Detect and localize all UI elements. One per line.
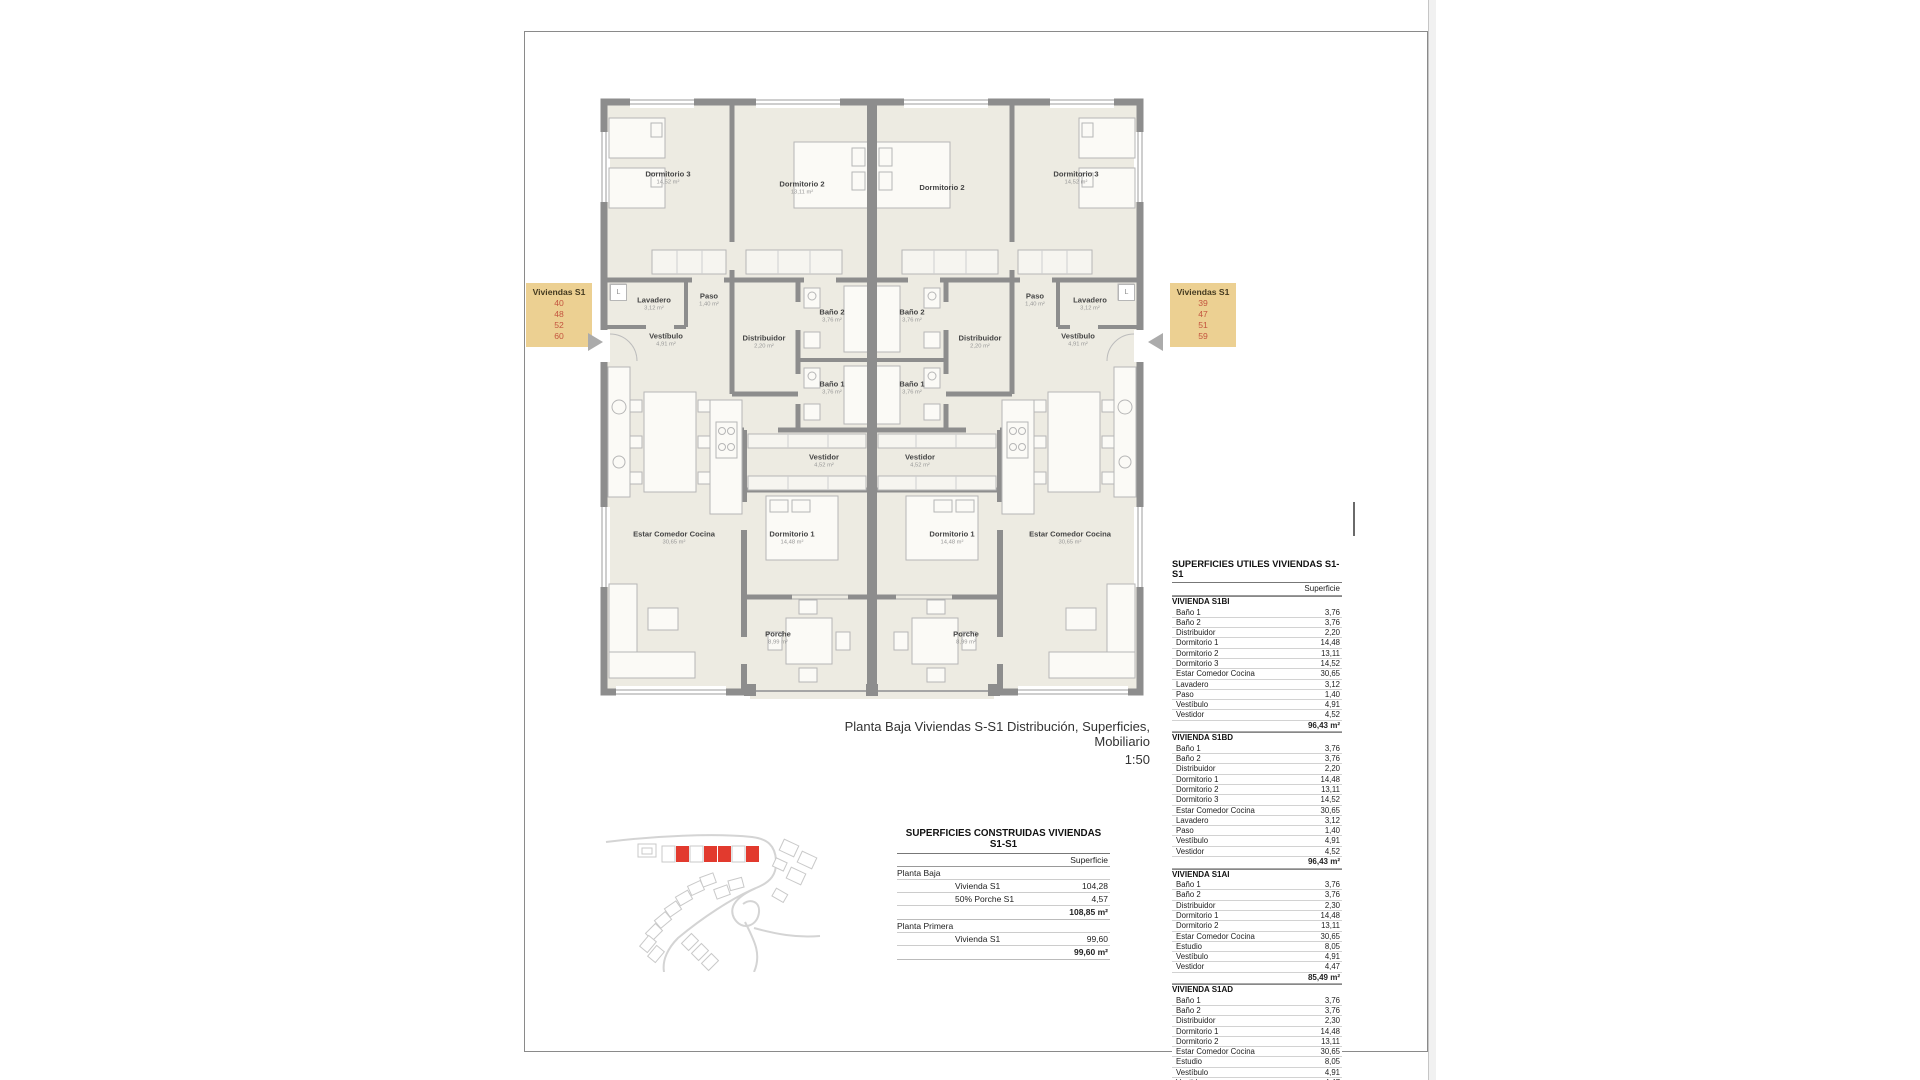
table-row: Distribuidor2,30 [1172, 1016, 1342, 1026]
row-value: 2,20 [1325, 628, 1342, 637]
row-label: Vestidor [1172, 710, 1204, 719]
row-label: Estar Comedor Cocina [1172, 806, 1255, 815]
room-label-dormitorio2-right: Dormitorio 213,11 m² [919, 183, 964, 193]
row-label: Baño 1 [1172, 996, 1201, 1005]
table-row: Dormitorio 314,52 [1172, 795, 1342, 805]
unit-tag-title: Viviendas S1 [526, 287, 592, 297]
table-column-header: Superficie [897, 854, 1110, 867]
room-label-vestidor-left: Vestidor4,52 m² [809, 452, 839, 469]
row-label: Dormitorio 3 [1172, 659, 1218, 668]
row-label: Paso [1172, 826, 1194, 835]
row-value: 1,40 [1325, 690, 1342, 699]
row-value: 3,76 [1325, 996, 1342, 1005]
table-row: Baño 23,76 [1172, 1006, 1342, 1016]
row-value: 3,12 [1325, 816, 1342, 825]
row-value: 3,76 [1325, 880, 1342, 889]
group-header: VIVIENDA S1AI [1172, 869, 1342, 881]
table-row: Estudio8,05 [1172, 1057, 1342, 1067]
table-row: Dormitorio 114,48 [1172, 911, 1342, 921]
entrance-arrow-right [1148, 333, 1163, 351]
section-subtotal: 108,85 m² [897, 906, 1110, 920]
row-value: 4,91 [1325, 952, 1342, 961]
usable-surfaces-table: SUPERFICIES UTILES VIVIENDAS S1-S1 Super… [1172, 557, 1342, 1080]
row-value: 3,76 [1325, 618, 1342, 627]
table-row: Vivienda S199,60 [897, 933, 1110, 946]
table-title: SUPERFICIES CONSTRUIDAS VIVIENDAS S1-S1 [897, 826, 1110, 854]
row-value: 4,91 [1325, 700, 1342, 709]
table-row: Dormitorio 114,48 [1172, 1027, 1342, 1037]
row-value: 4,52 [1325, 847, 1342, 856]
table-row: Dormitorio 114,48 [1172, 638, 1342, 648]
room-label-dormitorio1-left: Dormitorio 114,48 m² [769, 529, 814, 546]
table-row: Paso1,40 [1172, 690, 1342, 700]
row-label: Vestíbulo [1172, 1068, 1208, 1077]
row-label: Dormitorio 1 [1172, 1027, 1218, 1036]
row-value: 8,05 [1325, 1057, 1342, 1066]
row-label: Baño 2 [1172, 754, 1201, 763]
room-label-dormitorio3-right: Dormitorio 314,52 m² [1053, 169, 1098, 186]
table-row: Baño 13,76 [1172, 880, 1342, 890]
table-row: Baño 23,76 [1172, 618, 1342, 628]
row-label: Dormitorio 1 [1172, 911, 1218, 920]
table-title: SUPERFICIES UTILES VIVIENDAS S1-S1 [1172, 557, 1342, 583]
row-label: Distribuidor [1172, 901, 1215, 910]
unit-tag-left: Viviendas S1 40 48 52 60 [526, 283, 592, 347]
room-label-dormitorio2-left: Dormitorio 213,11 m² [779, 179, 824, 196]
room-label-bano2-right: Baño 23,76 m² [899, 307, 924, 324]
room-label-vestibulo-right: Vestíbulo4,91 m² [1061, 331, 1095, 348]
unit-number: 52 [526, 320, 592, 331]
row-value: 3,76 [1325, 1006, 1342, 1015]
table-row: Dormitorio 213,11 [1172, 649, 1342, 659]
laundry-symbol-right: L [1118, 284, 1135, 301]
table-row: 50% Porche S14,57 [897, 893, 1110, 906]
row-value: 3,76 [1325, 608, 1342, 617]
row-value: 3,12 [1325, 680, 1342, 689]
caption-scale: 1:50 [840, 752, 1150, 767]
row-value: 2,30 [1325, 901, 1342, 910]
row-label: Distribuidor [1172, 628, 1215, 637]
table-row: Distribuidor2,20 [1172, 628, 1342, 638]
table-row: Estar Comedor Cocina30,65 [1172, 669, 1342, 679]
highlighted-houses [676, 846, 759, 862]
row-value: 4,91 [1325, 836, 1342, 845]
unit-number: 47 [1170, 309, 1236, 320]
row-label: Dormitorio 1 [1172, 775, 1218, 784]
row-value: 13,11 [1321, 921, 1342, 930]
table-row: Estar Comedor Cocina30,65 [1172, 806, 1342, 816]
row-label: Estar Comedor Cocina [1172, 1047, 1255, 1056]
row-label: Distribuidor [1172, 1016, 1215, 1025]
row-label: Baño 2 [1172, 890, 1201, 899]
row-value: 4,47 [1325, 962, 1342, 971]
row-label: Dormitorio 2 [1172, 785, 1218, 794]
table-row: Dormitorio 114,48 [1172, 775, 1342, 785]
table-row: Vestíbulo4,91 [1172, 836, 1342, 846]
room-label-bano1-left: Baño 13,76 m² [819, 379, 844, 396]
row-label: Baño 2 [1172, 618, 1201, 627]
porch-edge [744, 684, 1000, 699]
row-value: 3,76 [1325, 744, 1342, 753]
unit-tag-title: Viviendas S1 [1170, 287, 1236, 297]
row-label: Lavadero [1172, 816, 1209, 825]
row-value: 30,65 [1320, 806, 1342, 815]
row-value: 2,20 [1325, 764, 1342, 773]
table-row: Distribuidor2,20 [1172, 764, 1342, 774]
room-label-porche-left: Porche8,99 m² [765, 629, 791, 646]
row-label: Vivienda S1 [897, 880, 1000, 892]
table-row: Lavadero3,12 [1172, 816, 1342, 826]
room-label-lavadero-right: Lavadero3,12 m² [1073, 295, 1107, 312]
unit-number: 59 [1170, 331, 1236, 342]
table-row: Dormitorio 213,11 [1172, 921, 1342, 931]
unit-number: 60 [526, 331, 592, 342]
row-label: Paso [1172, 690, 1194, 699]
row-label: Vestíbulo [1172, 700, 1208, 709]
drawing-sheet-page: Dormitorio 314,52 m² Dormitorio 213,11 m… [0, 0, 1920, 1080]
room-label-vestidor-right: Vestidor4,52 m² [905, 452, 935, 469]
table-row: Baño 13,76 [1172, 608, 1342, 618]
table-row: Vestidor4,47 [1172, 962, 1342, 972]
section-label: Planta Baja [897, 867, 1110, 880]
row-value: 1,40 [1325, 826, 1342, 835]
table-row: Dormitorio 213,11 [1172, 785, 1342, 795]
room-label-lavadero-left: Lavadero3,12 m² [637, 295, 671, 312]
row-value: 8,05 [1325, 942, 1342, 951]
table-row: Baño 23,76 [1172, 890, 1342, 900]
row-value: 2,30 [1325, 1016, 1342, 1025]
room-label-bano1-right: Baño 13,76 m² [899, 379, 924, 396]
table-row: Estar Comedor Cocina30,65 [1172, 1047, 1342, 1057]
laundry-symbol-left: L [610, 284, 627, 301]
row-label: Dormitorio 2 [1172, 649, 1218, 658]
row-value: 4,91 [1325, 1068, 1342, 1077]
table-row: Baño 13,76 [1172, 744, 1342, 754]
table-row: Baño 23,76 [1172, 754, 1342, 764]
room-label-paso-right: Paso1,40 m² [1025, 291, 1045, 308]
table-row: Vestidor4,52 [1172, 710, 1342, 720]
room-label-paso-left: Paso1,40 m² [699, 291, 719, 308]
row-value: 99,60 [1087, 933, 1110, 945]
table-row: Distribuidor2,30 [1172, 901, 1342, 911]
table-row: Vivienda S1104,28 [897, 880, 1110, 893]
row-value: 3,76 [1325, 754, 1342, 763]
unit-number: 48 [526, 309, 592, 320]
group-subtotal: 96,43 m² [1172, 721, 1342, 733]
row-value: 14,48 [1320, 775, 1342, 784]
row-value: 14,48 [1320, 911, 1342, 920]
caption-title: Planta Baja Viviendas S-S1 Distribución,… [840, 719, 1150, 749]
row-value: 4,52 [1325, 710, 1342, 719]
table-row: Vestíbulo4,91 [1172, 700, 1342, 710]
row-label: Dormitorio 2 [1172, 1037, 1218, 1046]
row-label: Baño 1 [1172, 880, 1201, 889]
row-label: Estar Comedor Cocina [1172, 669, 1255, 678]
row-label: Baño 1 [1172, 744, 1201, 753]
table-row: Paso1,40 [1172, 826, 1342, 836]
row-value: 14,52 [1320, 795, 1342, 804]
row-label: Estudio [1172, 942, 1202, 951]
row-value: 104,28 [1082, 880, 1110, 892]
site-key-map-drawing [604, 820, 822, 972]
room-label-dormitorio1-right: Dormitorio 114,48 m² [929, 529, 974, 546]
room-label-vestibulo-left: Vestíbulo4,91 m² [649, 331, 683, 348]
room-label-estar-right: Estar Comedor Cocina30,65 m² [1029, 529, 1111, 546]
row-label: Baño 1 [1172, 608, 1201, 617]
row-label: Vestíbulo [1172, 836, 1208, 845]
row-value: 13,11 [1321, 1037, 1342, 1046]
table-row: Dormitorio 314,52 [1172, 659, 1342, 669]
row-label: Dormitorio 2 [1172, 921, 1218, 930]
floor-plan: Dormitorio 314,52 m² Dormitorio 213,11 m… [596, 92, 1148, 712]
group-subtotal: 85,49 m² [1172, 973, 1342, 985]
entrance-arrow-left [588, 333, 603, 351]
table-row: Lavadero3,12 [1172, 680, 1342, 690]
room-label-dormitorio3-left: Dormitorio 314,52 m² [645, 169, 690, 186]
table-row: Vestidor4,52 [1172, 847, 1342, 857]
row-value: 30,65 [1320, 932, 1342, 941]
row-value: 14,48 [1320, 638, 1342, 647]
site-key-map [604, 820, 822, 972]
built-surfaces-table: SUPERFICIES CONSTRUIDAS VIVIENDAS S1-S1 … [897, 826, 1110, 960]
row-value: 30,65 [1320, 669, 1342, 678]
table-row: Estudio8,05 [1172, 942, 1342, 952]
row-value: 13,11 [1321, 649, 1342, 658]
fold-mark [1353, 502, 1355, 536]
unit-number: 39 [1170, 298, 1236, 309]
group-subtotal: 96,43 m² [1172, 857, 1342, 869]
row-label: Estudio [1172, 1057, 1202, 1066]
row-label: Baño 2 [1172, 1006, 1201, 1015]
plan-caption: Planta Baja Viviendas S-S1 Distribución,… [840, 719, 1150, 767]
row-label: Vestidor [1172, 847, 1204, 856]
row-value: 4,57 [1091, 893, 1110, 905]
table-row: Vestíbulo4,91 [1172, 952, 1342, 962]
table-row: Estar Comedor Cocina30,65 [1172, 932, 1342, 942]
row-label: Vestíbulo [1172, 952, 1208, 961]
row-label: Lavadero [1172, 680, 1209, 689]
row-label: Vivienda S1 [897, 933, 1000, 945]
row-label: Dormitorio 1 [1172, 638, 1218, 647]
group-header: VIVIENDA S1BD [1172, 732, 1342, 744]
group-header: VIVIENDA S1AD [1172, 984, 1342, 996]
row-value: 14,48 [1320, 1027, 1342, 1036]
row-label: Vestidor [1172, 962, 1204, 971]
row-value: 14,52 [1320, 659, 1342, 668]
unit-number: 51 [1170, 320, 1236, 331]
room-label-bano2-left: Baño 23,76 m² [819, 307, 844, 324]
sheet-right-edge [1428, 0, 1436, 1080]
room-label-porche-right: Porche8,99 m² [953, 629, 979, 646]
row-label: Estar Comedor Cocina [1172, 932, 1255, 941]
table-row: Dormitorio 213,11 [1172, 1037, 1342, 1047]
row-value: 13,11 [1321, 785, 1342, 794]
section-label: Planta Primera [897, 920, 1110, 933]
table-row: Vestíbulo4,91 [1172, 1068, 1342, 1078]
room-label-distribuidor-left: Distribuidor2,20 m² [742, 333, 785, 350]
group-header: VIVIENDA S1BI [1172, 596, 1342, 608]
row-label: Dormitorio 3 [1172, 795, 1218, 804]
table-column-header: Superficie [1172, 583, 1342, 596]
row-label: Distribuidor [1172, 764, 1215, 773]
unit-number: 40 [526, 298, 592, 309]
unit-tag-right: Viviendas S1 39 47 51 59 [1170, 283, 1236, 347]
row-value: 3,76 [1325, 890, 1342, 899]
room-label-distribuidor-right: Distribuidor2,20 m² [958, 333, 1001, 350]
room-label-estar-left: Estar Comedor Cocina30,65 m² [633, 529, 715, 546]
section-subtotal: 99,60 m² [897, 946, 1110, 960]
table-row: Baño 13,76 [1172, 996, 1342, 1006]
row-value: 30,65 [1320, 1047, 1342, 1056]
row-label: 50% Porche S1 [897, 893, 1014, 905]
